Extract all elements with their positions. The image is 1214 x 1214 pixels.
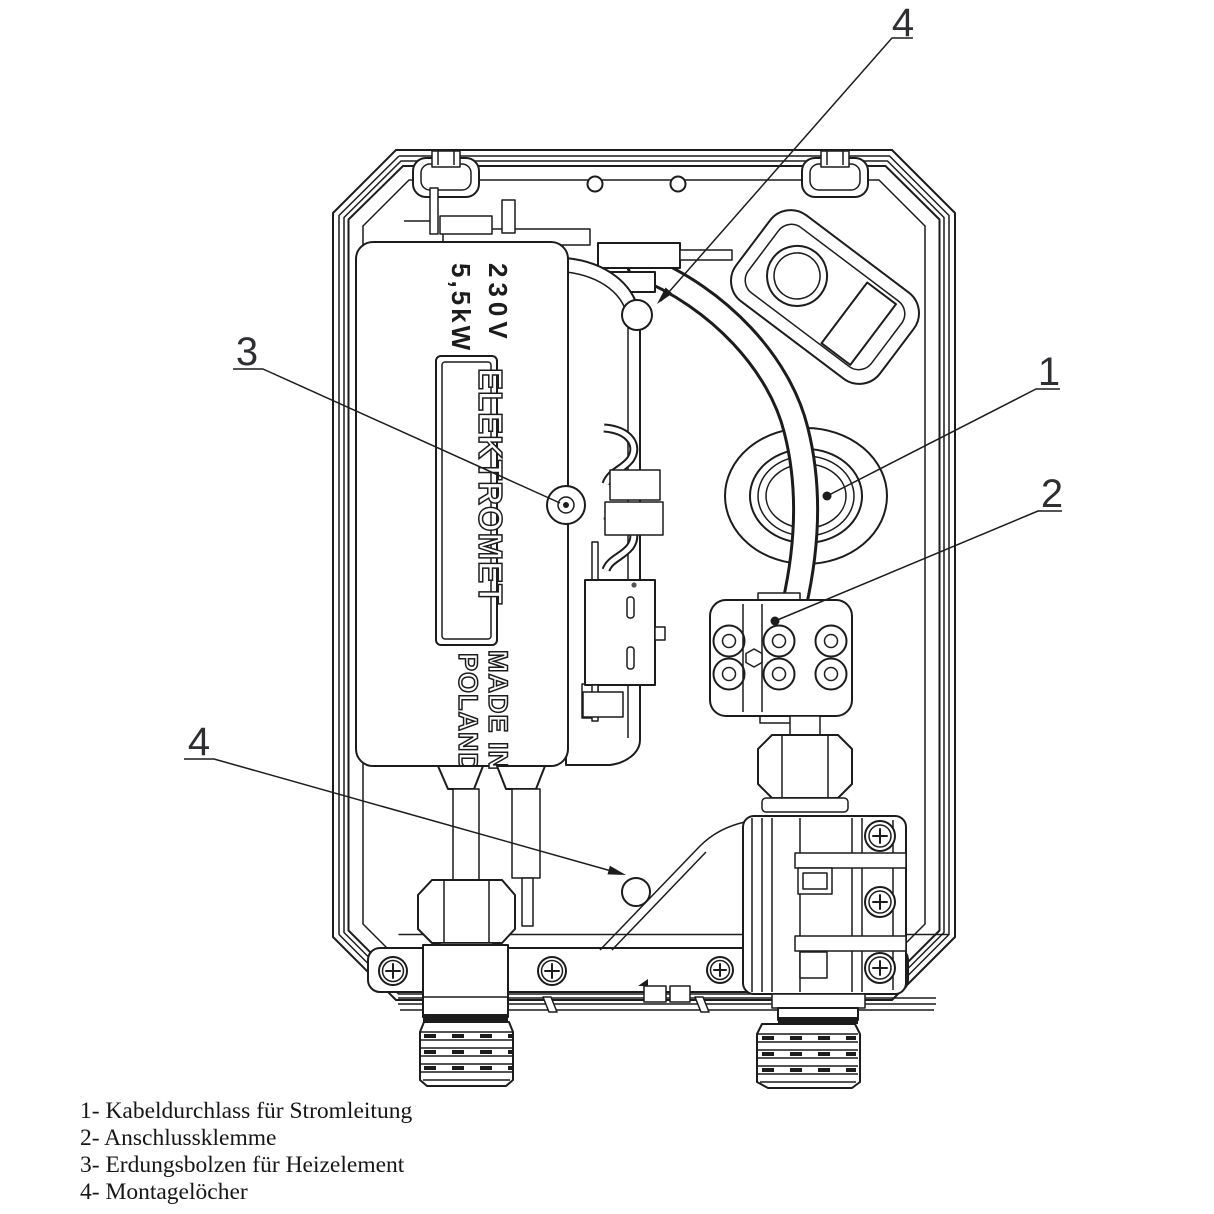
figure-page: 230V 5,5kW ELEKTROMET MADE IN POLAND bbox=[0, 0, 1214, 1214]
leader-arrow-4-bottom bbox=[608, 866, 627, 875]
brand-name: ELEKTROMET bbox=[472, 368, 509, 605]
callout-number-3: 3 bbox=[236, 330, 258, 374]
callout-number-1: 1 bbox=[1038, 350, 1060, 394]
callout-number-4-top: 4 bbox=[892, 1, 914, 45]
callout-number-4-bottom: 4 bbox=[188, 720, 210, 764]
thermostat-box bbox=[440, 216, 492, 234]
inlet-hex-nut bbox=[758, 735, 852, 798]
legend-item-2: 2- Anschlussklemme bbox=[80, 1125, 276, 1151]
country-text: POLAND bbox=[453, 653, 483, 773]
callout-number-2: 2 bbox=[1041, 472, 1063, 516]
terminal-block bbox=[710, 593, 852, 723]
mounting-hole-bottom bbox=[622, 878, 650, 906]
made-in-text: MADE IN bbox=[483, 650, 513, 771]
screw bbox=[379, 957, 407, 985]
screw bbox=[707, 957, 733, 983]
leader-dot-2 bbox=[771, 617, 780, 626]
technical-drawing: 230V 5,5kW ELEKTROMET MADE IN POLAND bbox=[0, 0, 1214, 1214]
mounting-hole-top bbox=[622, 300, 652, 330]
outlet-thread bbox=[420, 1022, 513, 1086]
screw bbox=[865, 953, 895, 983]
legend-item-4: 4- Montagelöcher bbox=[80, 1179, 248, 1205]
screw bbox=[865, 821, 895, 851]
housing-hole-right bbox=[671, 177, 686, 192]
screw bbox=[538, 957, 566, 985]
leader-dot-1 bbox=[823, 492, 832, 501]
thermal-cutout bbox=[585, 580, 665, 685]
rating-power: 5,5kW bbox=[446, 263, 476, 353]
legend: 1- Kabeldurchlass für Stromleitung 2- An… bbox=[80, 1098, 412, 1205]
top-tab-right bbox=[802, 151, 868, 197]
legend-item-1: 1- Kabeldurchlass für Stromleitung bbox=[80, 1098, 412, 1124]
screw bbox=[865, 887, 895, 917]
leader-line-4-bottom bbox=[184, 759, 622, 874]
rating-voltage: 230V bbox=[483, 263, 513, 344]
earthing-bolt bbox=[547, 486, 585, 524]
legend-item-3: 3- Erdungsbolzen für Heizelement bbox=[80, 1152, 405, 1178]
outlet-hex-nut bbox=[418, 880, 515, 943]
inlet-thread bbox=[757, 1024, 860, 1088]
housing-hole-left bbox=[588, 177, 603, 192]
top-tab-left bbox=[413, 151, 479, 197]
